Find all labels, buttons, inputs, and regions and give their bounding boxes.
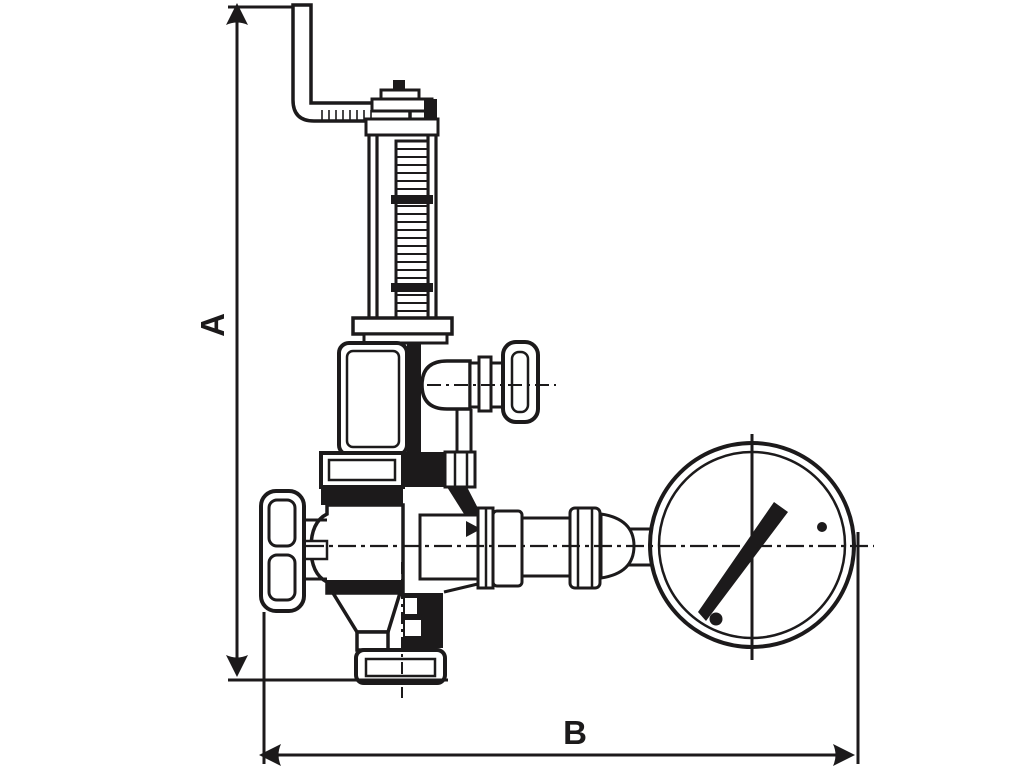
dim-a-label: A (194, 313, 231, 337)
spindle-cap (366, 80, 438, 135)
test-knob (503, 342, 538, 422)
gauge-needle-stop (710, 613, 723, 626)
dim-b-arrow-right (833, 744, 855, 766)
dim-b-label: B (563, 714, 587, 751)
spring-bonnet (353, 135, 452, 343)
valve-assembly (261, 5, 874, 698)
drawing-canvas: A B (0, 0, 1024, 766)
valve-body (300, 487, 403, 593)
spring-housing (339, 343, 421, 455)
dim-b-arrow-left (259, 744, 281, 766)
gauge-piping (420, 508, 654, 588)
dim-a-arrow-down (226, 655, 248, 677)
gauge-dial-dot (817, 522, 827, 532)
valve-dimension-drawing: A B (0, 0, 1024, 766)
test-connection (422, 342, 556, 452)
handwheel (261, 491, 304, 611)
